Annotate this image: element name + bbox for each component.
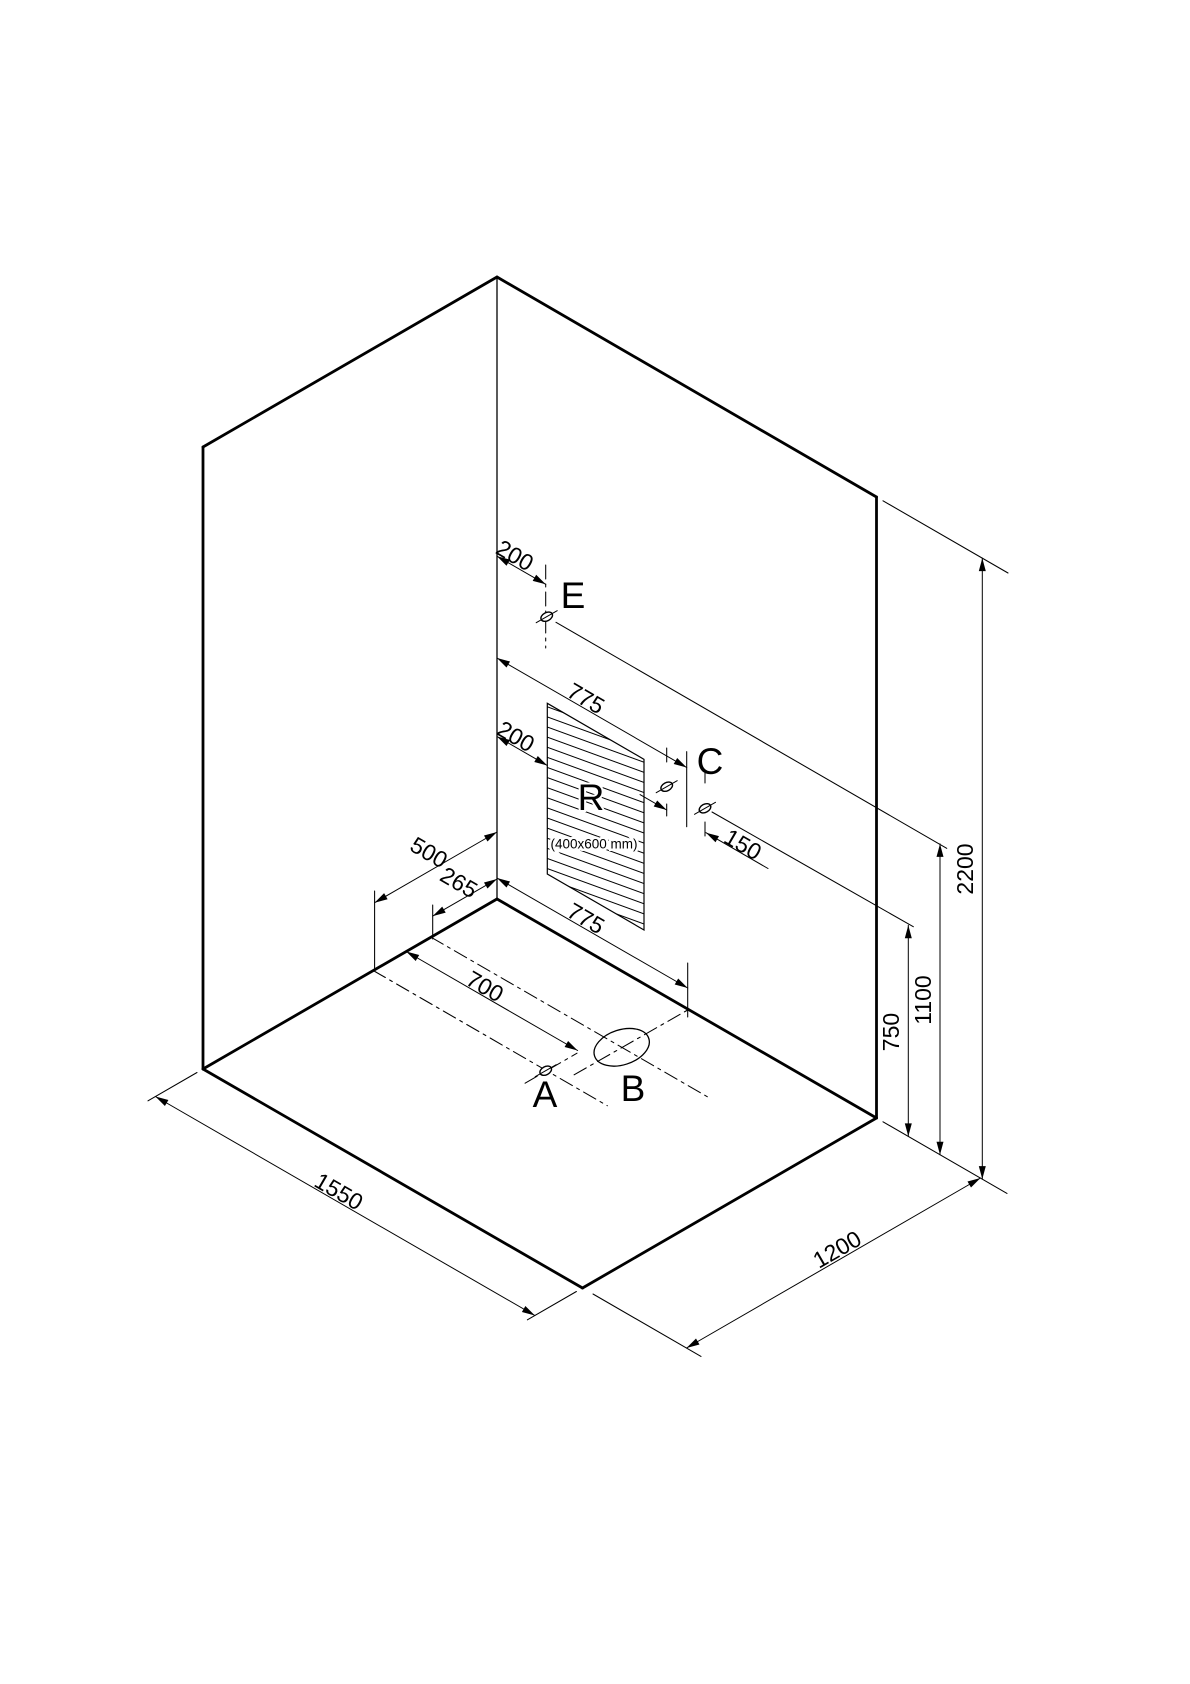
dim-750-arrow-end — [905, 925, 912, 938]
dim-200-e-label: 200 — [492, 534, 538, 576]
label-b: B — [621, 1068, 646, 1109]
centerline-b-long — [431, 937, 708, 1097]
floor-back-left-edge — [203, 899, 497, 1069]
dim-1100-label: 1100 — [910, 975, 936, 1024]
ext-top-right — [883, 501, 1008, 573]
dim-150-label: 150 — [720, 823, 766, 865]
dim-265-arrow-end — [484, 879, 497, 889]
dim-150-arrow-0 — [654, 800, 667, 810]
dim-2200-label: 2200 — [952, 843, 978, 894]
label-c: C — [697, 741, 724, 782]
dim-1550-arrow-start — [155, 1097, 168, 1107]
isometric-installation-drawing: 2007752005002657007751550120075011002200… — [0, 0, 1190, 1684]
dim-200-r-arrow-end — [534, 756, 547, 766]
dim-775-upper-arrow-end — [674, 758, 687, 768]
dim-150-arrow-1 — [706, 833, 719, 843]
dim-775-lower-arrow-start — [497, 878, 510, 888]
drawing-page: 2007752005002657007751550120075011002200… — [0, 0, 1190, 1684]
label-r: R — [578, 777, 605, 818]
dim-700-arrow-end — [565, 1041, 578, 1051]
floor-front-left-edge — [203, 1069, 583, 1288]
dim-1550-label: 1550 — [310, 1167, 367, 1215]
dim-265-arrow-start — [433, 907, 446, 917]
dim-200-e-arrow-end — [533, 575, 546, 585]
wall-left-top-edge — [203, 277, 497, 447]
label-a: A — [533, 1074, 558, 1115]
dim-1200-arrow-end — [967, 1178, 980, 1188]
ext-floor-right — [883, 1122, 1007, 1194]
dim-200-r-label: 200 — [493, 715, 539, 757]
dim-1200-label: 1200 — [808, 1225, 865, 1273]
dim-500-arrow-start — [375, 893, 388, 903]
dim-775-upper-label: 775 — [563, 677, 609, 719]
dim-500-arrow-end — [484, 832, 497, 842]
dim-775-upper-arrow-start — [497, 658, 510, 668]
dim-775-lower-arrow-end — [675, 978, 688, 988]
dim-700-arrow-start — [406, 952, 419, 962]
ext-1200-left — [593, 1294, 701, 1356]
dim-1550-arrow-end — [522, 1306, 535, 1316]
wall-right-top-edge — [497, 277, 877, 497]
dim-1200-arrow-start — [687, 1338, 700, 1348]
dim-265-label: 265 — [436, 861, 482, 903]
dim-750-label: 750 — [878, 1013, 904, 1051]
label-e: E — [561, 575, 586, 616]
drain-point-b — [589, 1022, 654, 1073]
dim-700-label: 700 — [462, 965, 508, 1007]
label-r-size: (400x600 mm) — [550, 837, 637, 852]
